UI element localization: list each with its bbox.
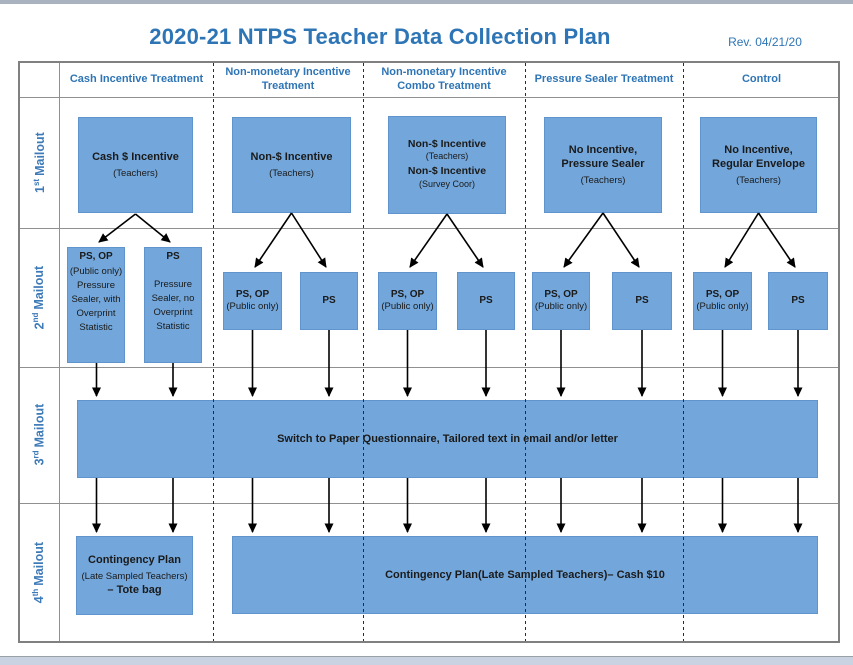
banner-bold-text: Contingency Plan [385,569,478,581]
column-separator-1 [213,63,214,641]
box-title: Non-$ Incentive [408,165,486,179]
column-separator-2 [363,63,364,641]
box-description: Pressure Sealer, with Overprint Statisti… [69,279,123,335]
row-label-word: Mailout [33,404,47,448]
box-title: Contingency Plan [88,554,181,568]
box-subtitle: (Public only) [381,301,433,314]
row-label-number: 3 [33,459,47,466]
grid-hline-row2 [18,367,840,368]
window-top-strip [0,0,853,4]
box-title: PS, OP [706,288,739,302]
box-title: Non-$ Incentive [251,151,333,165]
box-m1-control: No Incentive, Regular Envelope (Teachers… [700,117,817,213]
row-label-word: Mailout [33,542,47,586]
box-subtitle: (Public only) [70,265,122,279]
revision-date: Rev. 04/21/20 [700,35,830,49]
banner-text: Switch to Paper Questionnaire, Tailored … [277,433,618,445]
grid-hline-header [18,97,840,98]
column-header-non-monetary: Non-monetary Incentive Treatment [213,62,363,97]
column-separator-4 [683,63,684,641]
box-subtitle: (Survey Coor) [419,179,475,191]
grid-hline-row3 [18,503,840,504]
banner-bold-text: – Cash $10 [607,569,664,581]
box-m2-cash-ps: PS Pressure Sealer, no Overprint Statist… [144,247,202,363]
box-m1-cash-incentive: Cash $ Incentive (Teachers) [78,117,193,213]
box-title: PS, OP [236,288,269,302]
box-title: PS, OP [79,250,112,265]
box-subtitle: (Public only) [226,301,278,314]
box-subtitle: (Teachers) [269,168,314,179]
box-m2-nonmonetary-ps-op: PS, OP (Public only) [223,272,282,330]
box-subtitle: (Public only) [535,301,587,314]
row-label-ordinal: th [31,589,40,597]
row-label-number: 2 [33,322,47,329]
box-m1-pressure-sealer: No Incentive, Pressure Sealer (Teachers) [544,117,662,213]
column-header-control: Control [683,62,840,97]
row-label-1st-mailout: 1stMailout [19,97,59,228]
box-title: PS [322,294,335,308]
box-title: No Incentive, Regular Envelope [709,144,808,172]
box-m1-combo: Non-$ Incentive (Teachers) Non-$ Incenti… [388,116,506,214]
box-m2-pressure-ps: PS [612,272,672,330]
box-m4-contingency-tote-bag: Contingency Plan (Late Sampled Teachers)… [76,536,193,615]
row-label-3rd-mailout: 3rdMailout [19,367,59,503]
column-separator-3 [525,63,526,641]
grid-hline-row1 [18,228,840,229]
box-title: PS [479,294,492,308]
box-title: PS [635,294,648,308]
row-label-2nd-mailout: 2ndMailout [19,228,59,367]
box-description: Pressure Sealer, no Overprint Statistic [146,278,200,334]
box-m2-combo-ps-op: PS, OP (Public only) [378,272,437,330]
row-label-ordinal: rd [31,451,40,459]
row-label-word: Mailout [33,266,47,310]
box-title: PS, OP [544,288,577,302]
box-title: PS [166,250,179,265]
box-title: Non-$ Incentive [408,138,486,152]
row-label-4th-mailout: 4thMailout [19,503,59,643]
box-m2-nonmonetary-ps: PS [300,272,358,330]
box-subtitle: (Teachers) [736,175,781,186]
box-subtitle: (Public only) [696,301,748,314]
box-title: Cash $ Incentive [92,151,179,165]
box-detail: – Tote bag [107,584,161,598]
row-label-word: Mailout [33,132,47,176]
banner-regular-text: (Late Sampled Teachers) [478,569,607,581]
row-label-column-divider [59,61,60,643]
window-bottom-strip [0,657,853,665]
box-m3-paper-questionnaire: Switch to Paper Questionnaire, Tailored … [77,400,818,478]
box-subtitle: (Teachers) [426,151,469,163]
column-header-non-monetary-combo: Non-monetary Incentive Combo Treatment [363,62,525,97]
row-label-ordinal: nd [31,313,40,323]
box-title: PS, OP [391,288,424,302]
row-label-number: 1 [33,186,47,193]
box-subtitle: (Late Sampled Teachers) [82,571,188,582]
box-title: PS [791,294,804,308]
box-m2-cash-ps-op: PS, OP (Public only) Pressure Sealer, wi… [67,247,125,363]
column-header-cash-incentive: Cash Incentive Treatment [60,62,213,97]
row-label-number: 4 [33,597,47,604]
box-subtitle: (Teachers) [113,168,158,179]
box-m2-pressure-ps-op: PS, OP (Public only) [532,272,590,330]
box-subtitle: (Teachers) [581,175,626,186]
box-m2-control-ps: PS [768,272,828,330]
box-m2-combo-ps: PS [457,272,515,330]
box-title: No Incentive, Pressure Sealer [555,144,651,172]
document-page: 2020-21 NTPS Teacher Data Collection Pla… [0,0,853,665]
column-header-pressure-sealer: Pressure Sealer Treatment [525,62,683,97]
box-m2-control-ps-op: PS, OP (Public only) [693,272,752,330]
row-label-ordinal: st [31,179,40,186]
box-m1-non-monetary: Non-$ Incentive (Teachers) [232,117,351,213]
diagram-title: 2020-21 NTPS Teacher Data Collection Pla… [40,24,720,50]
